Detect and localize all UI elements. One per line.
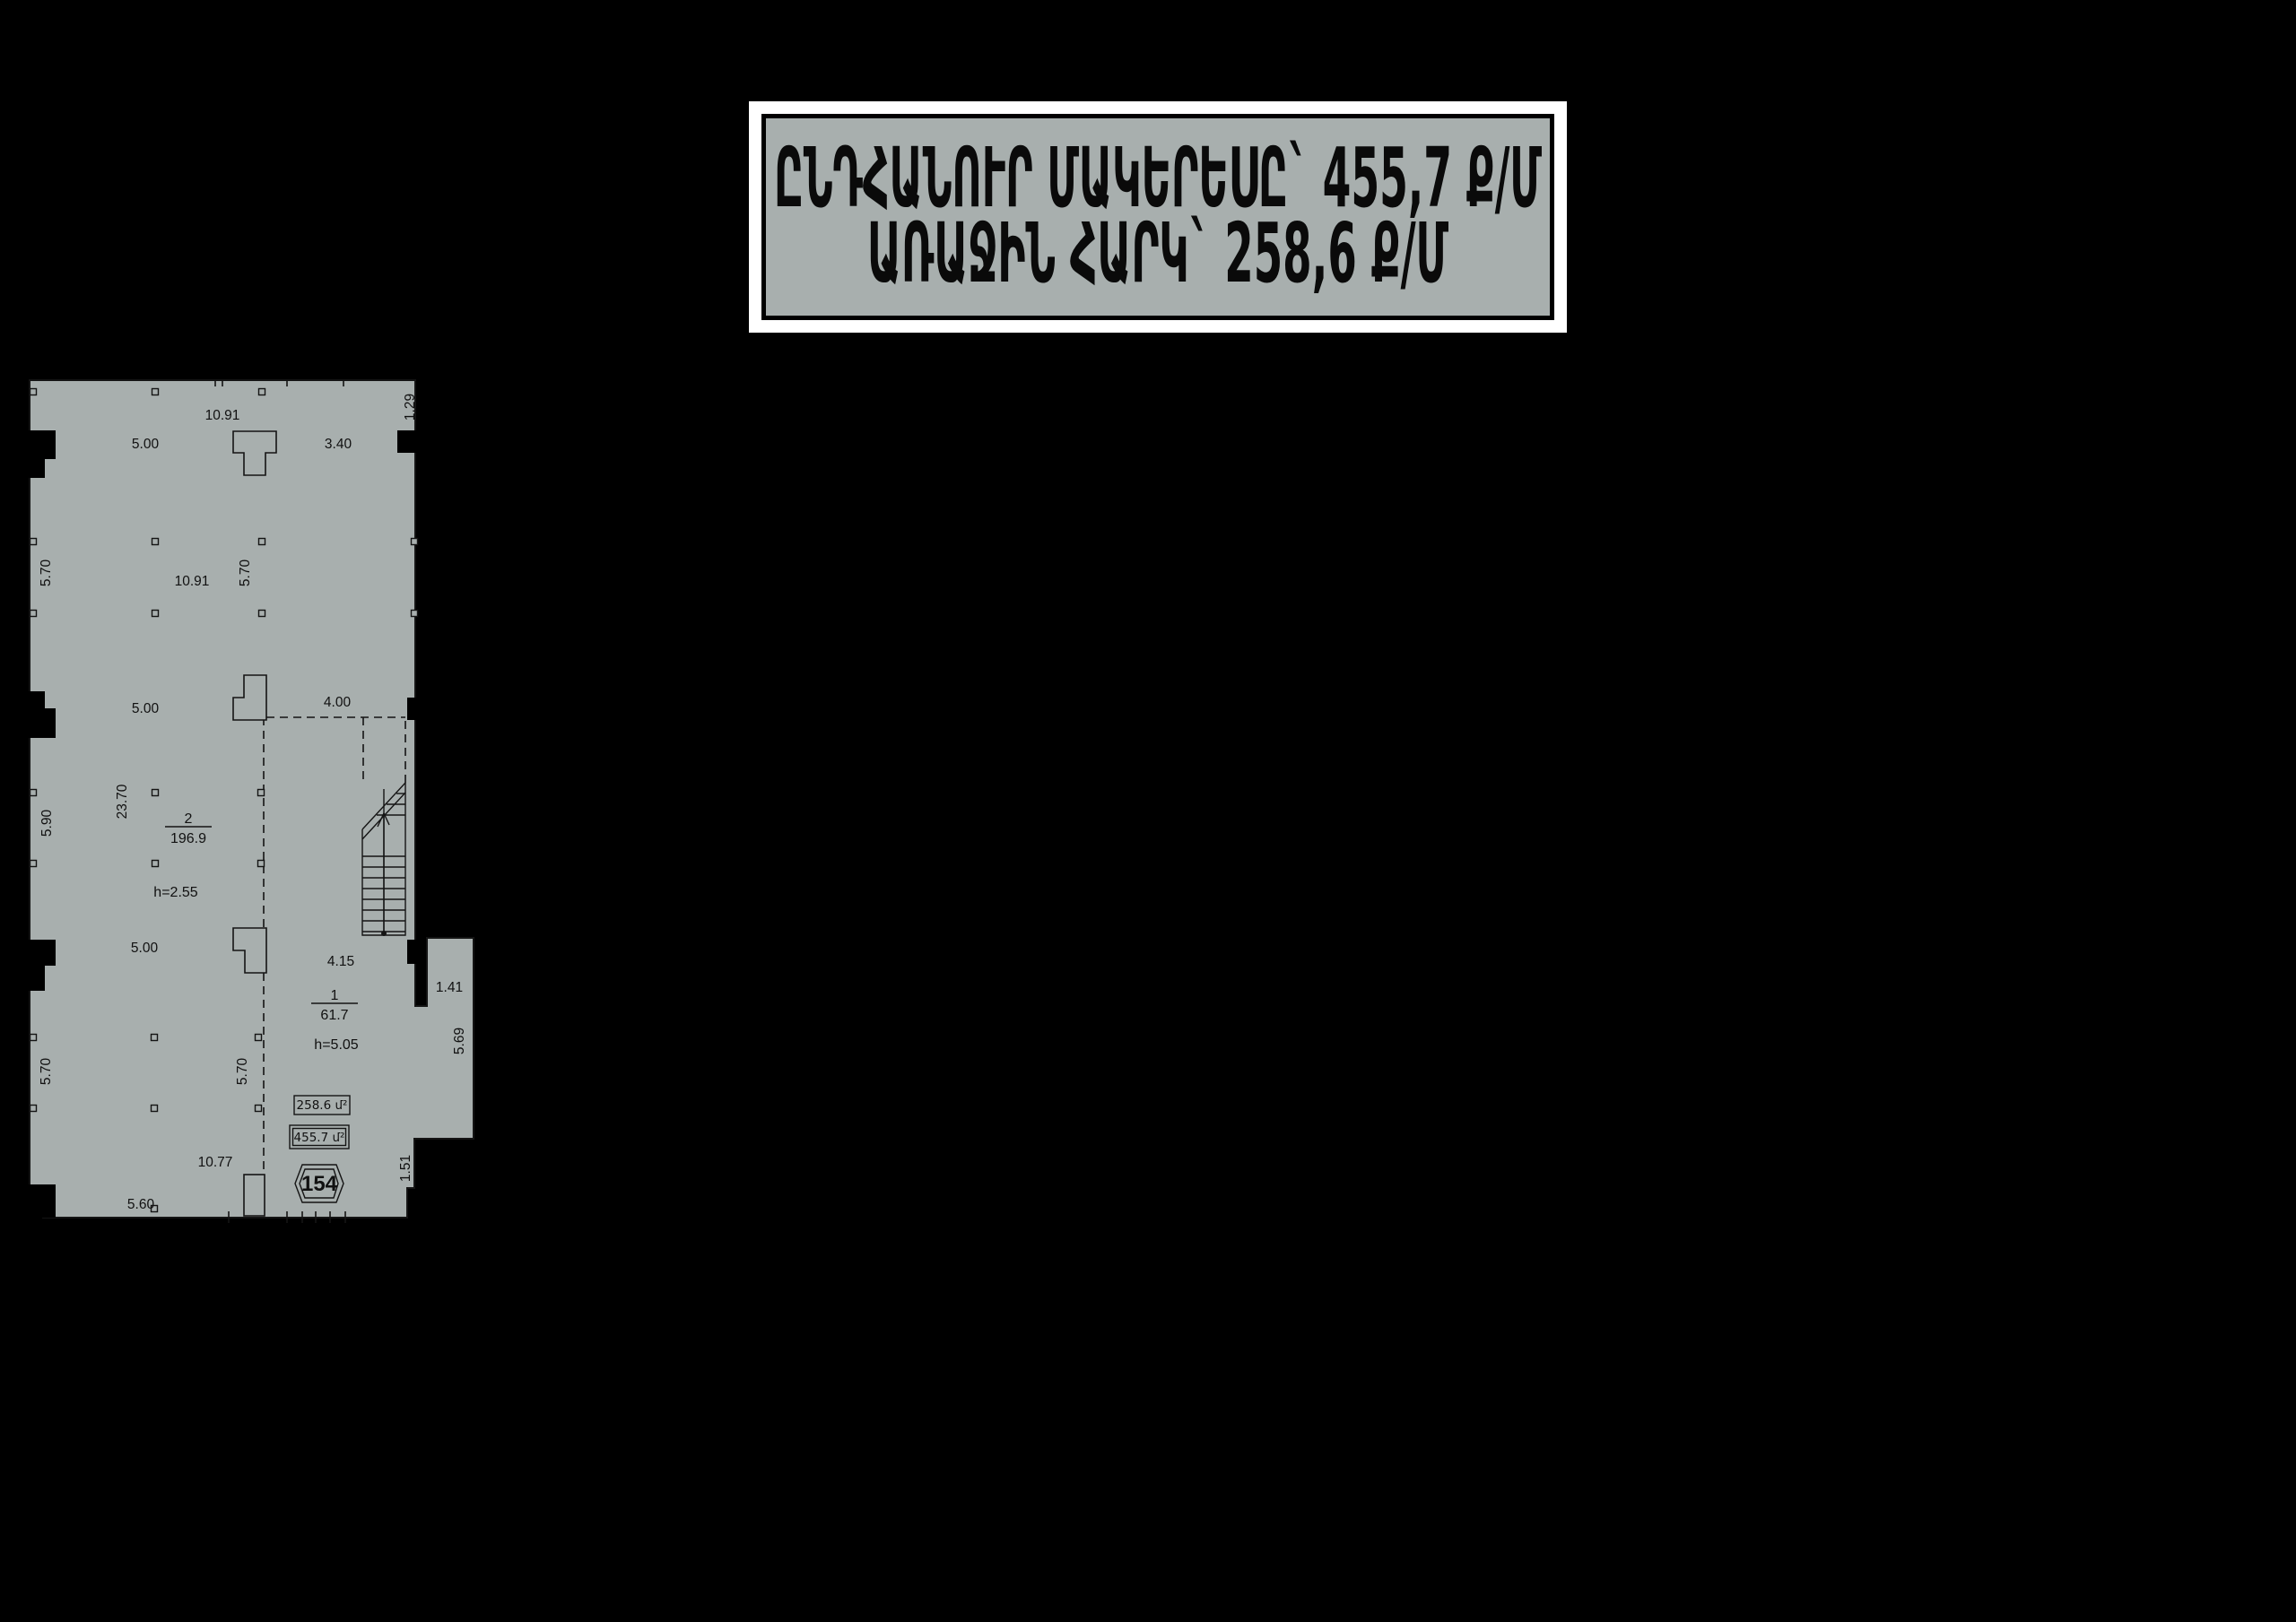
plan-outline	[30, 380, 474, 1218]
dim-left-lower-bay: 5.00	[131, 941, 159, 956]
first-floor-area-value: 258.6 մ²	[297, 1098, 348, 1113]
unit-number: 154	[301, 1172, 338, 1196]
room1-number: 1	[331, 988, 339, 1003]
room1-area: 61.7	[320, 1008, 348, 1023]
shaft-column	[244, 1175, 265, 1216]
dim-top-right-bay: 3.40	[325, 437, 352, 452]
first-floor-area-box: 258.6 մ²	[294, 1096, 350, 1115]
dim-annex-right-depth: 5.69	[452, 1028, 467, 1054]
dim-annex-top-width: 1.41	[436, 980, 463, 995]
dim-room1-width: 4.15	[327, 954, 354, 969]
dim-middle-bottom-bay: 5.70	[235, 1058, 250, 1086]
page: ԸՆԴՀԱՆՈՒՐ ՄԱԿԵՐԵՍԸ` 455,7 Ք/Մ ԱՌԱՋԻՆ ՀԱՐ…	[0, 0, 2296, 1622]
dim-left-middle-bay: 5.90	[39, 810, 55, 837]
room2-area: 196.9	[170, 831, 206, 846]
dim-upper-middle-span: 10.91	[175, 574, 210, 589]
dim-right-edge-top: 1.29	[403, 394, 418, 421]
dim-right-bottom-edge: 1.51	[398, 1155, 413, 1182]
dim-top-left-bay: 5.00	[132, 437, 160, 452]
dim-left-upper-bay: 5.70	[39, 559, 54, 587]
room2-ceiling-height: h=2.55	[153, 885, 197, 900]
dim-top-span: 10.91	[205, 408, 240, 423]
dim-bottom-span: 10.77	[198, 1155, 233, 1170]
dim-mezzanine-width: 4.00	[324, 695, 352, 710]
dim-bottom-left-bay: 5.60	[127, 1197, 155, 1212]
dim-left-bottom-bay: 5.70	[39, 1058, 54, 1086]
title-box-inner: ԸՆԴՀԱՆՈՒՐ ՄԱԿԵՐԵՍԸ` 455,7 Ք/Մ ԱՌԱՋԻՆ ՀԱՐ…	[761, 114, 1554, 320]
title-box: ԸՆԴՀԱՆՈՒՐ ՄԱԿԵՐԵՍԸ` 455,7 Ք/Մ ԱՌԱՋԻՆ ՀԱՐ…	[749, 101, 1567, 333]
title-line-first-floor: ԱՌԱՋԻՆ ՀԱՐԿ` 258,6 Ք/Մ	[867, 205, 1448, 301]
dim-upper-middle-bay: 5.70	[238, 559, 253, 587]
title-text: ԸՆԴՀԱՆՈՒՐ ՄԱԿԵՐԵՍԸ` 455,7 Ք/Մ ԱՌԱՋԻՆ ՀԱՐ…	[766, 118, 1550, 316]
total-area-box: 455.7 մ²	[290, 1125, 349, 1149]
dim-left-mid-bay: 5.00	[132, 701, 160, 716]
floor-plan: 10.91 5.00 3.40 1.29 5.70 10.91 5.70 5.0…	[22, 379, 502, 1227]
dim-left-long-span: 23.70	[115, 784, 130, 819]
room1-ceiling-height: h=5.05	[314, 1037, 358, 1053]
total-area-value: 455.7 մ²	[294, 1131, 345, 1145]
room2-number: 2	[185, 811, 193, 827]
